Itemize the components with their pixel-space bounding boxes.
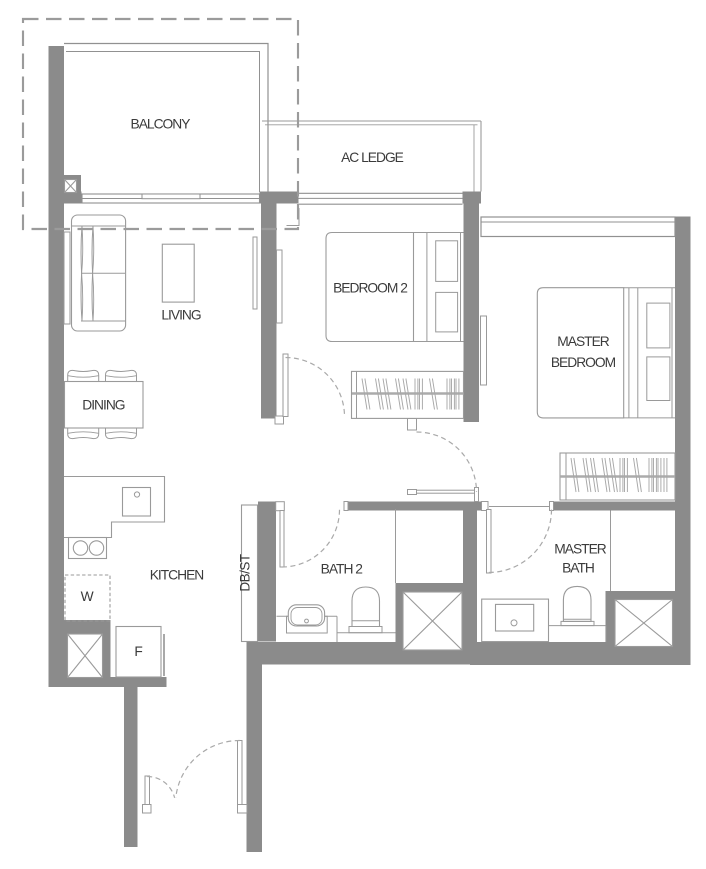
svg-text:DINING: DINING bbox=[82, 398, 125, 413]
svg-text:BEDROOM: BEDROOM bbox=[551, 355, 616, 370]
svg-text:KITCHEN: KITCHEN bbox=[150, 568, 204, 583]
svg-text:AC LEDGE: AC LEDGE bbox=[341, 150, 404, 165]
svg-text:LIVING: LIVING bbox=[161, 308, 201, 323]
svg-text:MASTER: MASTER bbox=[554, 542, 607, 557]
svg-text:MASTER: MASTER bbox=[557, 334, 610, 349]
svg-text:W: W bbox=[81, 589, 94, 604]
svg-text:BEDROOM 2: BEDROOM 2 bbox=[333, 281, 407, 296]
svg-text:F: F bbox=[134, 644, 142, 659]
svg-text:BALCONY: BALCONY bbox=[131, 117, 191, 132]
svg-text:DB/ST: DB/ST bbox=[238, 554, 253, 592]
svg-text:BATH: BATH bbox=[562, 561, 594, 576]
svg-text:BATH 2: BATH 2 bbox=[321, 562, 363, 577]
